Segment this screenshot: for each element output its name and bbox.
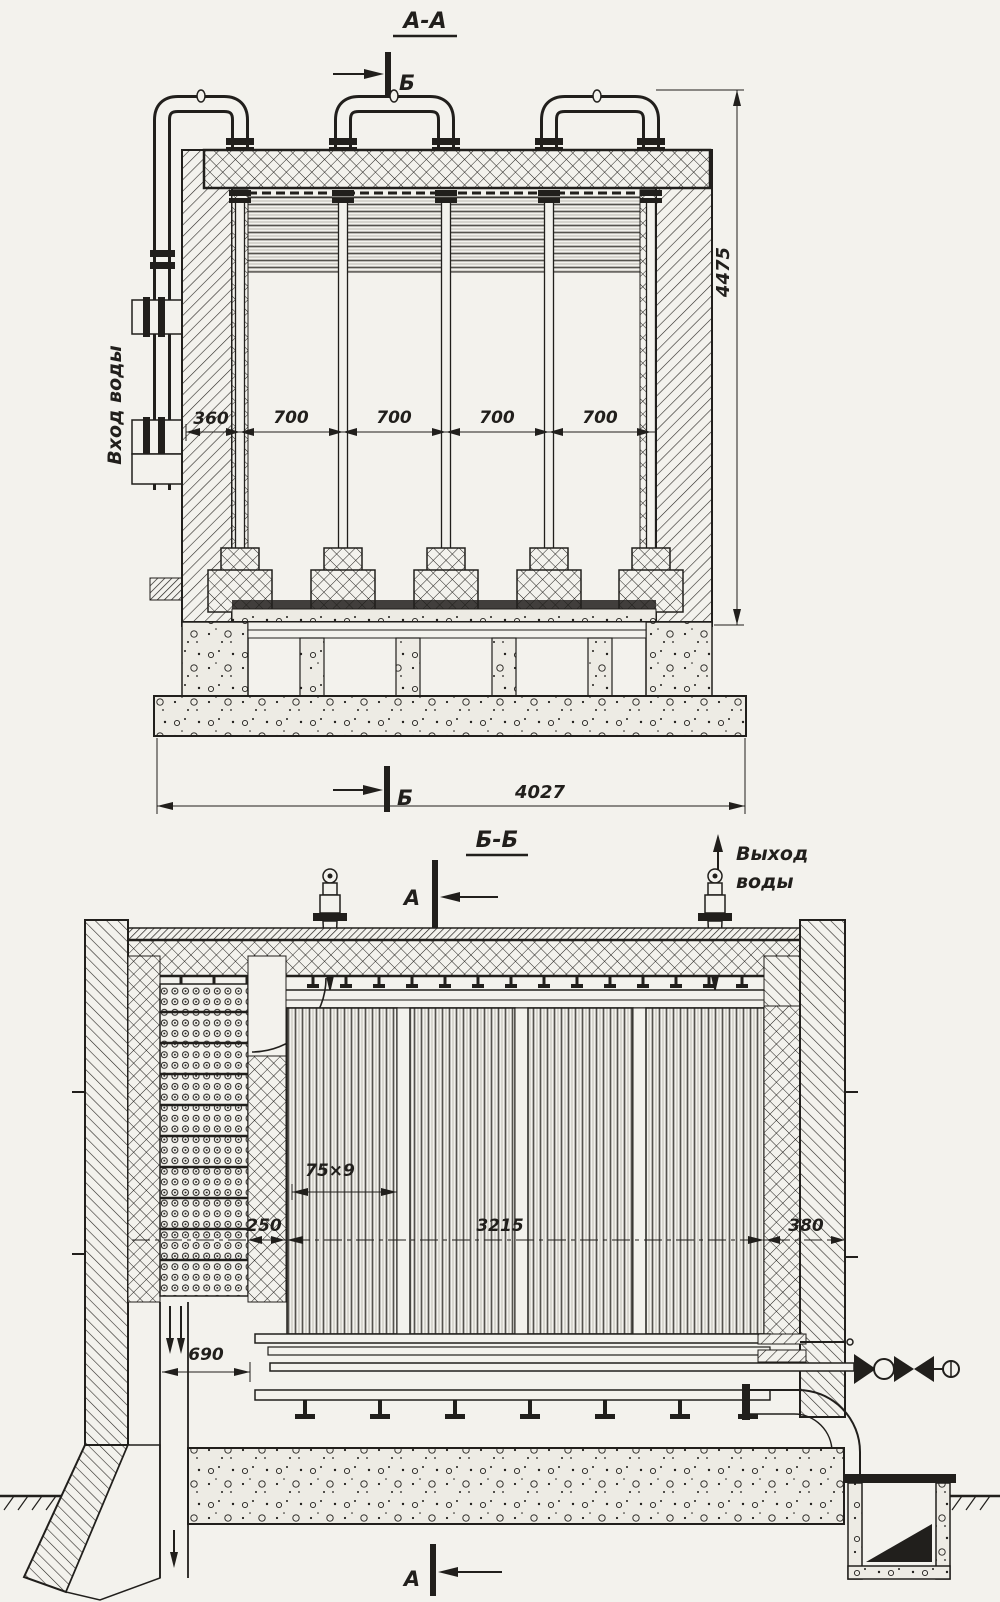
bb-tube-bank xyxy=(160,984,248,1296)
inlet-water-label: Вход воды xyxy=(104,345,126,464)
cut-label-a-top: А xyxy=(402,886,420,910)
section-bb-view: Б-Б А Выход воды xyxy=(0,828,1000,1600)
dim-tube: 75×9 xyxy=(305,1161,355,1181)
outlet-label-line1: Выход xyxy=(736,843,808,865)
aa-top-lid xyxy=(204,150,710,188)
bb-bottom-collector xyxy=(255,1334,854,1371)
blueprint: А-А Б Вход воды xyxy=(0,0,1000,1602)
ground-right xyxy=(950,1496,1000,1510)
dim-flue: 690 xyxy=(188,1345,224,1365)
aa-base-slab xyxy=(154,696,746,736)
cut-marker-a-bottom: А xyxy=(402,1544,502,1596)
dim-inner-span: 3215 xyxy=(476,1216,523,1236)
dim-right-gap: 380 xyxy=(788,1216,824,1236)
dim-total-width: 4027 xyxy=(514,782,566,803)
dim-first-bay: 360 xyxy=(193,409,229,429)
bb-drain-valve xyxy=(854,1354,959,1384)
dim-bay-3: 700 xyxy=(479,408,515,428)
bb-foundation-slab xyxy=(188,1448,844,1524)
bb-left-wall xyxy=(85,920,128,1445)
bb-right-lining xyxy=(764,1006,800,1334)
bb-tube-panels xyxy=(287,1008,764,1334)
dim-height: 4475 xyxy=(713,247,734,298)
cut-label-a-bottom: А xyxy=(402,1567,420,1591)
cut-label-b-bottom: Б xyxy=(397,786,413,810)
water-outlet-label: Выход воды xyxy=(713,834,808,893)
section-aa-view: А-А Б Вход воды xyxy=(104,9,746,814)
section-aa-title: А-А xyxy=(401,9,446,34)
bb-mid-lining xyxy=(248,1056,286,1302)
section-bb-title: Б-Б xyxy=(476,828,519,853)
bb-header xyxy=(255,990,770,1008)
bb-flue-dimension: 690 xyxy=(162,1345,250,1382)
aa-piers xyxy=(182,622,712,696)
cut-marker-b-top: Б xyxy=(333,52,415,98)
drawing-canvas: А-А Б Вход воды xyxy=(0,0,1000,1602)
outlet-label-line2: воды xyxy=(736,871,794,893)
dim-bay-2: 700 xyxy=(376,408,412,428)
cut-marker-a-top: А xyxy=(402,860,498,930)
dim-bay-1: 700 xyxy=(273,408,309,428)
bb-drain-pit xyxy=(842,1474,956,1579)
bb-top-plate xyxy=(96,928,802,940)
aa-width-dimension xyxy=(157,738,745,814)
cut-marker-b-bottom: Б xyxy=(333,766,413,812)
bb-right-corner xyxy=(764,956,800,1006)
cut-label-b-top: Б xyxy=(399,71,415,95)
bb-top-lid xyxy=(96,940,802,976)
dim-bay-4: 700 xyxy=(582,408,618,428)
bb-notch xyxy=(248,956,286,1056)
bb-left-lining xyxy=(128,956,160,1302)
bb-support-plate xyxy=(255,1390,770,1419)
dim-left-gap: 250 xyxy=(246,1216,282,1236)
